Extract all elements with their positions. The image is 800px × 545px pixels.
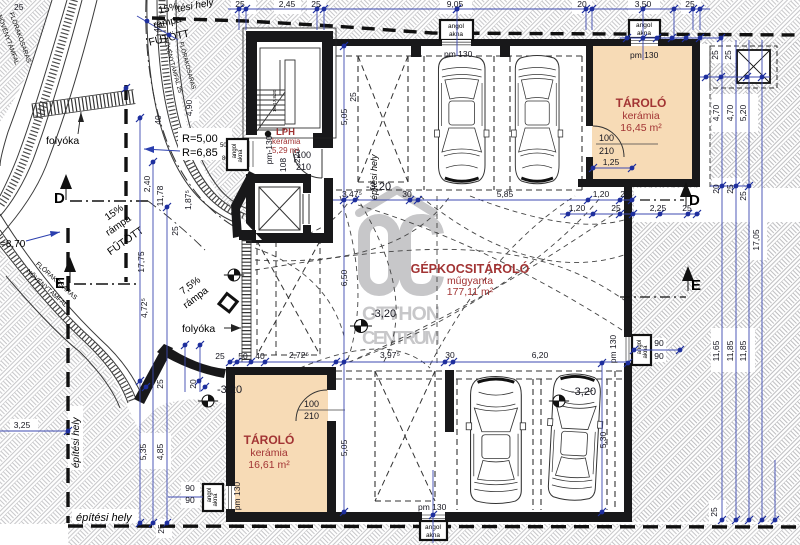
svg-text:akna: akna bbox=[238, 149, 244, 163]
svg-text:pm 130: pm 130 bbox=[418, 502, 447, 512]
svg-text:kerámia: kerámia bbox=[622, 110, 660, 122]
svg-text:D: D bbox=[54, 190, 65, 207]
svg-text:30: 30 bbox=[445, 350, 455, 360]
svg-text:25: 25 bbox=[235, 0, 245, 9]
svg-text:kerámia: kerámia bbox=[250, 447, 288, 459]
svg-text:11,85: 11,85 bbox=[738, 340, 748, 361]
svg-text:25: 25 bbox=[14, 2, 24, 12]
svg-text:-3,20: -3,20 bbox=[371, 308, 396, 320]
svg-text:4,70: 4,70 bbox=[711, 104, 721, 121]
svg-text:25: 25 bbox=[311, 0, 321, 9]
svg-text:177,11 m²: 177,11 m² bbox=[447, 286, 494, 298]
svg-text:1,25: 1,25 bbox=[603, 157, 620, 167]
svg-text:=8,70: =8,70 bbox=[0, 239, 26, 250]
svg-text:17,05: 17,05 bbox=[751, 229, 761, 251]
svg-text:2,40: 2,40 bbox=[142, 175, 152, 192]
svg-text:25: 25 bbox=[215, 351, 225, 361]
svg-text:TÁROLÓ: TÁROLÓ bbox=[616, 95, 667, 110]
svg-text:2,25: 2,25 bbox=[650, 203, 667, 213]
svg-text:R=5,00: R=5,00 bbox=[182, 133, 218, 145]
svg-text:100: 100 bbox=[304, 399, 319, 409]
svg-text:2,72⁵: 2,72⁵ bbox=[289, 350, 309, 360]
svg-text:25: 25 bbox=[155, 379, 165, 389]
svg-text:5,85: 5,85 bbox=[497, 189, 514, 199]
svg-text:akna: akna bbox=[643, 345, 649, 359]
svg-text:3,25: 3,25 bbox=[14, 420, 31, 430]
svg-text:angol: angol bbox=[636, 22, 652, 29]
svg-text:építési hely: építési hely bbox=[369, 154, 379, 200]
svg-text:25: 25 bbox=[170, 226, 180, 236]
svg-text:20: 20 bbox=[188, 379, 198, 389]
svg-text:25: 25 bbox=[725, 184, 735, 194]
svg-text:90: 90 bbox=[654, 351, 664, 361]
svg-text:pm 130: pm 130 bbox=[630, 50, 659, 60]
svg-text:-3,20: -3,20 bbox=[571, 386, 596, 398]
svg-text:GÉPKOCSITÁROLÓ: GÉPKOCSITÁROLÓ bbox=[411, 261, 530, 276]
svg-text:16,61 m²: 16,61 m² bbox=[248, 459, 290, 471]
svg-text:9,05: 9,05 bbox=[447, 0, 464, 9]
svg-text:16x17,8/30: 16x17,8/30 bbox=[272, 89, 277, 112]
svg-text:akna: akna bbox=[213, 493, 219, 507]
svg-text:90: 90 bbox=[654, 338, 664, 348]
svg-text:25: 25 bbox=[156, 524, 166, 534]
svg-text:1,20: 1,20 bbox=[593, 189, 610, 199]
svg-text:25: 25 bbox=[611, 203, 621, 213]
svg-text:E: E bbox=[55, 275, 65, 292]
svg-text:25: 25 bbox=[348, 92, 358, 102]
svg-text:4,70: 4,70 bbox=[725, 104, 735, 121]
svg-text:40: 40 bbox=[152, 23, 162, 33]
svg-text:25: 25 bbox=[709, 507, 719, 517]
svg-text:E: E bbox=[691, 277, 701, 294]
svg-text:1,20: 1,20 bbox=[569, 203, 586, 213]
svg-text:210: 210 bbox=[599, 146, 614, 156]
svg-text:1,87⁵: 1,87⁵ bbox=[183, 190, 193, 210]
svg-text:40: 40 bbox=[153, 115, 163, 125]
svg-text:6,20: 6,20 bbox=[532, 350, 549, 360]
svg-text:25: 25 bbox=[620, 189, 630, 199]
svg-text:16,45 m²: 16,45 m² bbox=[620, 122, 662, 134]
svg-text:3,47⁵: 3,47⁵ bbox=[342, 189, 362, 199]
svg-text:25: 25 bbox=[723, 50, 733, 60]
svg-text:2,45: 2,45 bbox=[279, 0, 296, 9]
svg-text:D: D bbox=[689, 192, 700, 209]
svg-text:50: 50 bbox=[238, 351, 248, 361]
svg-text:25: 25 bbox=[710, 50, 720, 60]
svg-text:folyóka: folyóka bbox=[182, 323, 215, 335]
svg-text:20: 20 bbox=[711, 184, 721, 194]
svg-text:90: 90 bbox=[185, 495, 195, 505]
svg-text:210: 210 bbox=[296, 162, 311, 172]
svg-text:kerámia: kerámia bbox=[272, 137, 301, 146]
svg-text:6,50: 6,50 bbox=[339, 269, 349, 286]
svg-text:pm 130: pm 130 bbox=[232, 482, 242, 511]
svg-text:5,20: 5,20 bbox=[738, 104, 748, 121]
svg-text:5,05: 5,05 bbox=[339, 108, 349, 125]
svg-text:25: 25 bbox=[738, 191, 748, 201]
svg-text:5,29 m²: 5,29 m² bbox=[272, 146, 299, 155]
svg-text:5,30: 5,30 bbox=[598, 431, 608, 448]
svg-text:30: 30 bbox=[402, 189, 412, 199]
svg-text:4,85: 4,85 bbox=[155, 443, 165, 460]
svg-text:11,85: 11,85 bbox=[725, 340, 735, 361]
svg-text:akna: akna bbox=[449, 31, 463, 38]
svg-text:4,90: 4,90 bbox=[184, 99, 194, 116]
svg-text:CENTRUM: CENTRUM bbox=[362, 327, 440, 348]
svg-text:17,75: 17,75 bbox=[136, 251, 146, 273]
svg-text:pm 130: pm 130 bbox=[444, 49, 473, 59]
svg-text:25: 25 bbox=[685, 0, 695, 9]
svg-text:R=6,85: R=6,85 bbox=[182, 147, 218, 159]
svg-text:5,35: 5,35 bbox=[138, 443, 148, 460]
svg-text:-3,20: -3,20 bbox=[217, 384, 242, 396]
svg-text:-3,20: -3,20 bbox=[366, 181, 391, 193]
svg-text:folyóka: folyóka bbox=[46, 135, 79, 147]
svg-text:építési hely: építési hely bbox=[71, 416, 82, 468]
svg-text:40: 40 bbox=[255, 351, 265, 361]
svg-text:210: 210 bbox=[304, 411, 319, 421]
svg-text:11,65: 11,65 bbox=[711, 340, 721, 361]
svg-text:építési hely: építési hely bbox=[76, 512, 133, 524]
svg-text:11,78: 11,78 bbox=[155, 185, 165, 206]
svg-text:pm 130: pm 130 bbox=[608, 335, 618, 364]
svg-text:4,72⁵: 4,72⁵ bbox=[139, 298, 149, 318]
svg-text:5,05: 5,05 bbox=[339, 439, 349, 456]
svg-text:100: 100 bbox=[599, 133, 614, 143]
svg-text:angol: angol bbox=[448, 23, 464, 30]
svg-text:TÁROLÓ: TÁROLÓ bbox=[244, 432, 295, 447]
svg-text:108: 108 bbox=[278, 158, 288, 172]
svg-text:20: 20 bbox=[577, 0, 587, 9]
svg-text:3,50: 3,50 bbox=[635, 0, 652, 9]
svg-text:90: 90 bbox=[185, 483, 195, 493]
svg-text:3,97⁵: 3,97⁵ bbox=[380, 350, 400, 360]
